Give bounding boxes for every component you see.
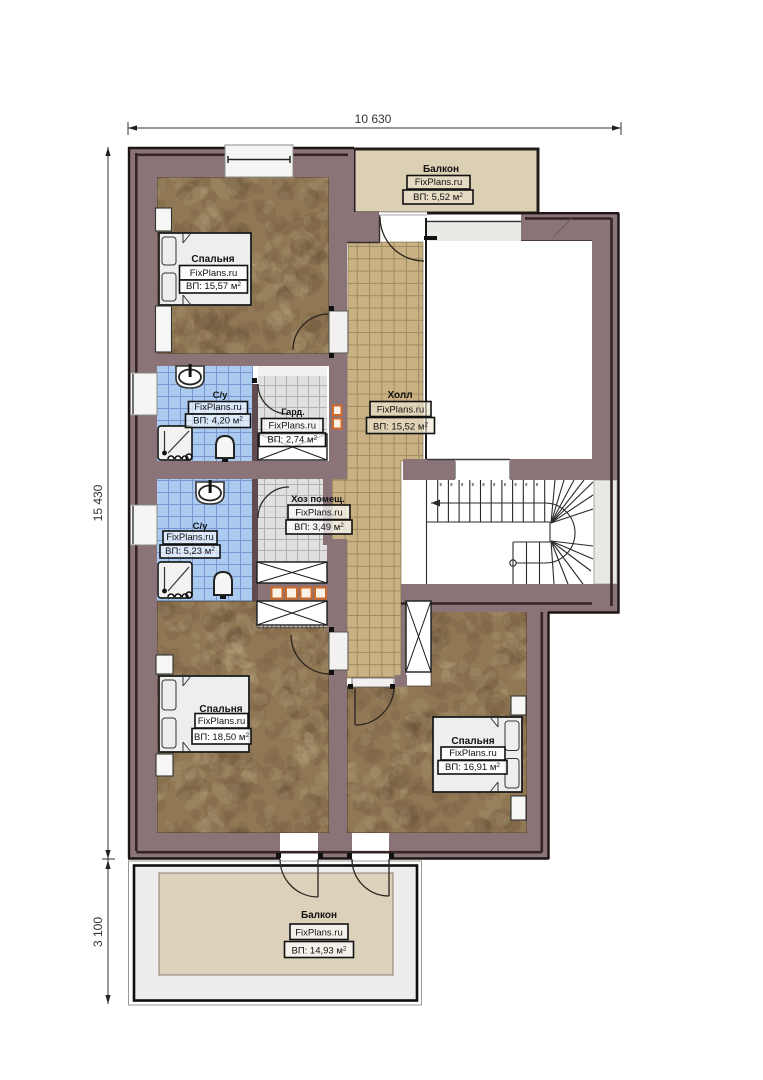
svg-text:FixPlans.ru: FixPlans.ru [194,402,242,413]
svg-text:FixPlans.ru: FixPlans.ru [268,421,316,432]
svg-text:ВП: 15,57 м2: ВП: 15,57 м2 [186,281,241,292]
svg-text:С/у: С/у [213,390,229,401]
svg-text:10 630: 10 630 [355,112,392,126]
svg-text:ВП: 5,23 м2: ВП: 5,23 м2 [165,546,215,557]
svg-text:ВП: 3,49 м2: ВП: 3,49 м2 [294,522,344,533]
svg-text:FixPlans.ru: FixPlans.ru [449,748,497,759]
svg-text:FixPlans.ru: FixPlans.ru [190,268,238,279]
svg-text:ВП: 2,74 м2: ВП: 2,74 м2 [267,435,317,446]
svg-text:3 100: 3 100 [91,917,105,947]
svg-text:FixPlans.ru: FixPlans.ru [295,928,343,939]
svg-text:Хоз помещ.: Хоз помещ. [291,494,345,505]
svg-text:Гард.: Гард. [281,407,304,417]
svg-text:ВП: 15,52 м2: ВП: 15,52 м2 [373,422,428,433]
svg-text:15 430: 15 430 [91,484,105,521]
svg-text:FixPlans.ru: FixPlans.ru [295,508,343,519]
svg-text:ВП: 4,20 м2: ВП: 4,20 м2 [193,416,243,427]
svg-text:Спальня: Спальня [451,736,494,747]
svg-text:FixPlans.ru: FixPlans.ru [377,405,425,416]
svg-text:Балкон: Балкон [301,910,337,921]
svg-text:Спальня: Спальня [191,254,234,265]
svg-text:ВП: 16,91 м2: ВП: 16,91 м2 [445,762,500,773]
svg-text:FixPlans.ru: FixPlans.ru [166,532,214,543]
svg-text:Холл: Холл [387,390,412,401]
svg-text:ВП: 18,50 м2: ВП: 18,50 м2 [194,732,249,743]
svg-text:ВП: 5,52 м2: ВП: 5,52 м2 [413,192,463,203]
svg-text:FixPlans.ru: FixPlans.ru [198,716,246,727]
svg-text:Балкон: Балкон [423,164,459,175]
svg-text:ВП: 14,93 м2: ВП: 14,93 м2 [291,946,346,957]
svg-text:FixPlans.ru: FixPlans.ru [415,177,463,188]
